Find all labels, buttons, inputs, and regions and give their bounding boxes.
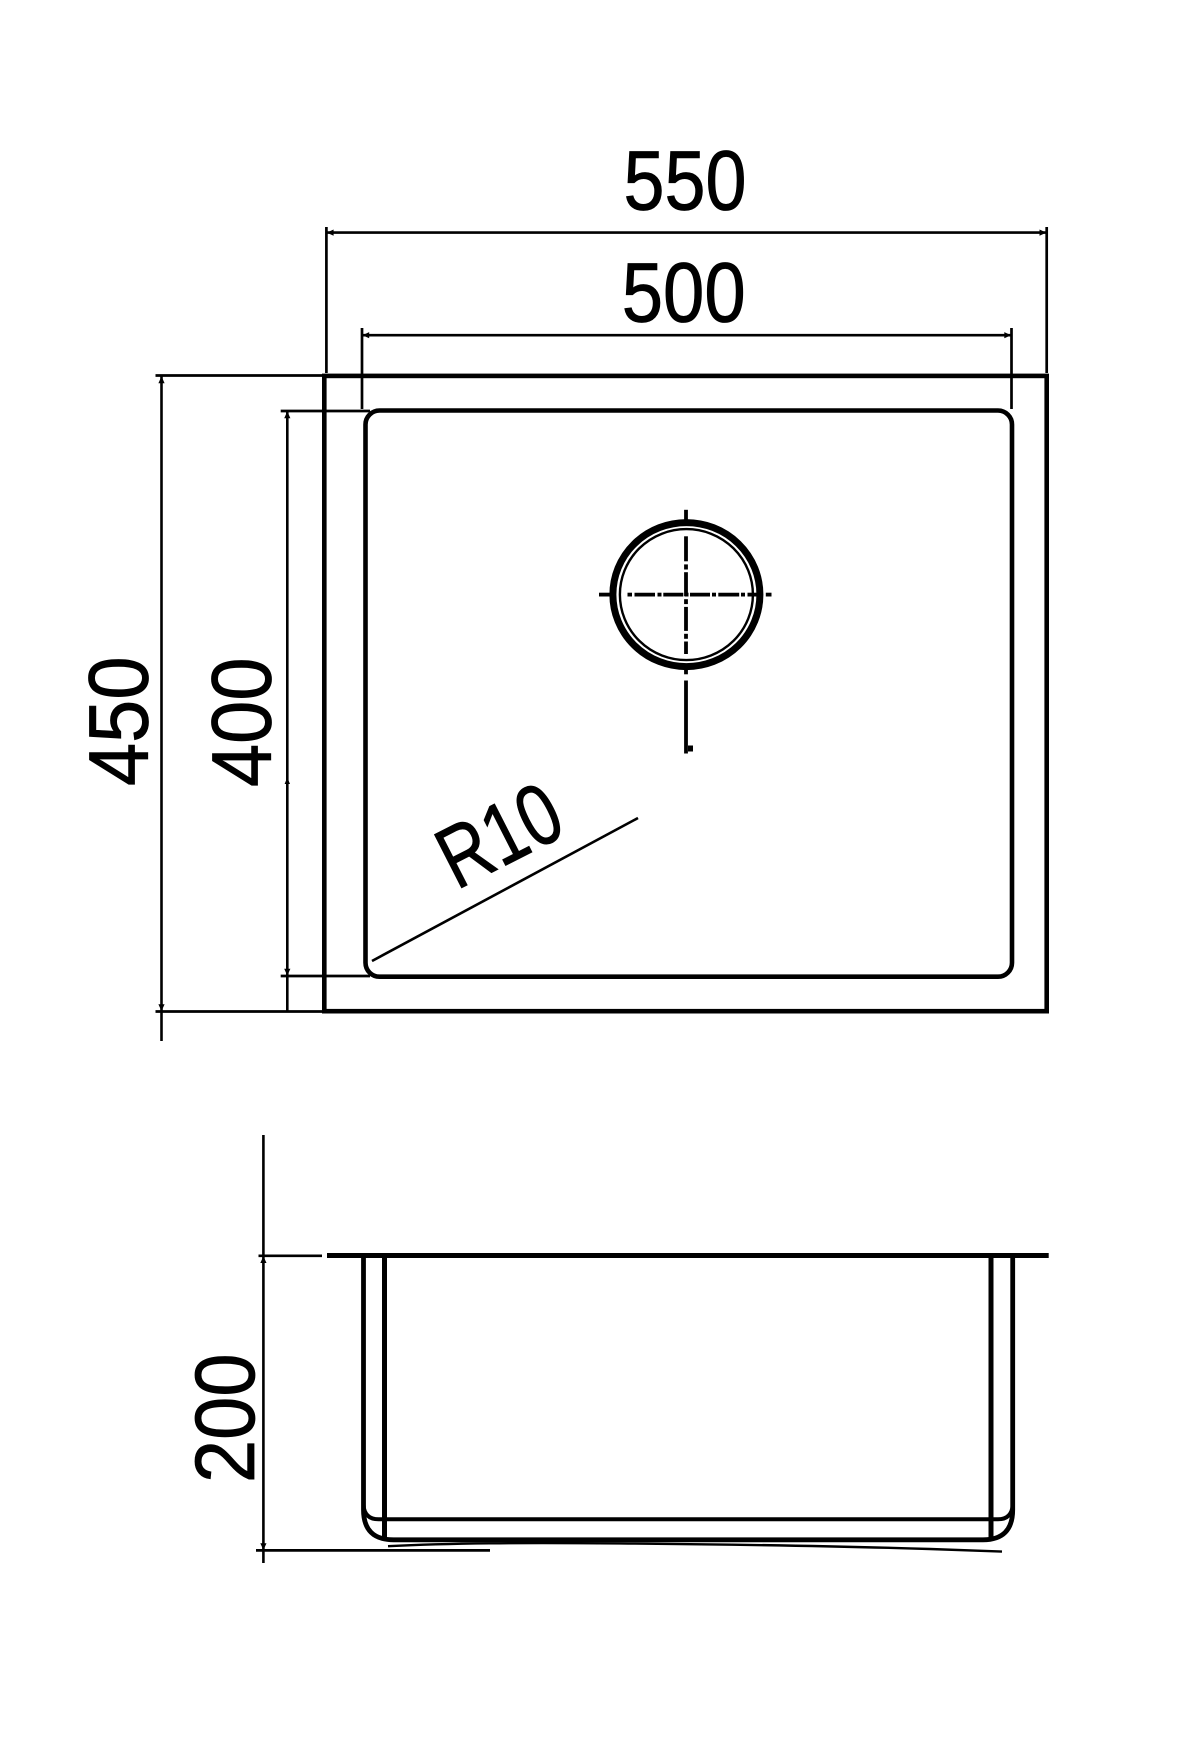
svg-text:400: 400 (194, 658, 288, 788)
svg-text:450: 450 (71, 657, 165, 787)
svg-text:200: 200 (178, 1354, 272, 1484)
svg-text:550: 550 (624, 133, 747, 227)
svg-text:500: 500 (622, 246, 746, 340)
